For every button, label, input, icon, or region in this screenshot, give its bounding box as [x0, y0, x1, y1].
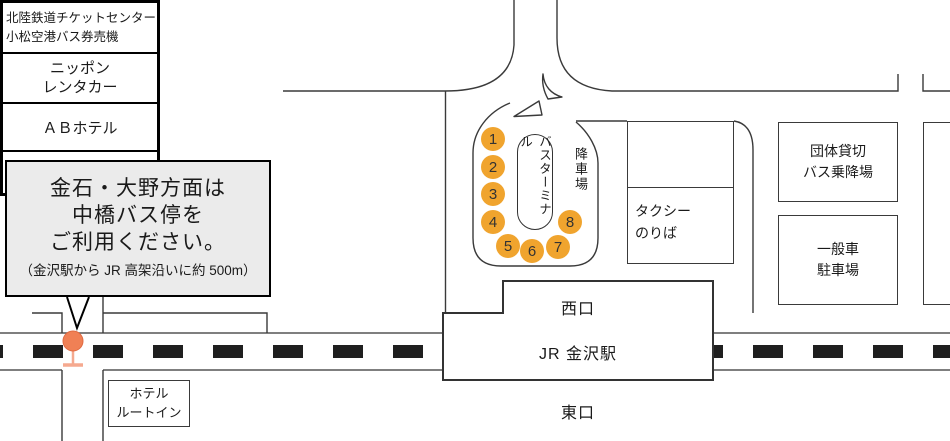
- hotel-line2: ルートイン: [116, 404, 181, 422]
- bus-terminal-label: バスターミナル: [516, 135, 554, 229]
- drop-off-label: 降車場: [571, 147, 590, 192]
- bus-stop-7: 7: [546, 235, 570, 259]
- callout-line: 中橋バス停を: [72, 205, 204, 227]
- bus-stop-8: 8: [558, 210, 582, 234]
- east-exit-label: 東口: [443, 399, 713, 423]
- taxi-line2: のりば: [635, 223, 733, 245]
- clipped-edge-box: [923, 122, 950, 305]
- chubashi-notice-callout: 金石・大野方面は 中橋バス停を ご利用ください。 （金沢駅から JR 高架沿いに…: [5, 160, 271, 297]
- bus-stop-2: 2: [481, 155, 505, 179]
- ab-hotel-cell: ＡＢホテル: [3, 102, 157, 150]
- callout-note: （金沢駅から JR 高架沿いに約 500m）: [19, 259, 256, 279]
- callout-tail: [67, 297, 89, 328]
- bus-stop-5: 5: [496, 234, 520, 258]
- parking-line1: 一般車: [817, 239, 859, 260]
- bus-stop-1: 1: [481, 127, 505, 151]
- hotel-route-inn-box: ホテル ルートイン: [108, 380, 190, 427]
- parking-line2: 駐車場: [817, 260, 859, 281]
- station-name-label: JR 金沢駅: [443, 340, 713, 364]
- bus-stop-pin: [63, 331, 83, 365]
- ticket-center-cell: 北陸鉄道チケットセンター 小松空港バス券売機: [3, 3, 157, 52]
- group-bus-area-box: 団体貸切 バス乗降場: [778, 122, 898, 202]
- bus-stop-4: 4: [481, 210, 505, 234]
- rentacar-line1: ニッポン: [50, 59, 110, 79]
- ticket-center-line2: 小松空港バス券売機: [6, 28, 119, 46]
- taxi-stand-label: タクシー のりば: [628, 188, 733, 244]
- rentacar-line2: レンタカー: [42, 78, 117, 98]
- ticket-center-line1: 北陸鉄道チケットセンター: [6, 9, 156, 27]
- group-bus-line2: バス乗降場: [803, 162, 873, 183]
- bus-stop-3: 3: [481, 182, 505, 206]
- group-bus-line1: 団体貸切: [810, 141, 866, 162]
- callout-line: 金石・大野方面は: [50, 178, 226, 200]
- taxi-stand-box: タクシー のりば: [627, 121, 734, 264]
- traffic-islands: [514, 74, 562, 117]
- west-exit-label: 西口: [443, 295, 713, 319]
- station-map: 金石・大野方面は 中橋バス停を ご利用ください。 （金沢駅から JR 高架沿いに…: [0, 0, 950, 441]
- taxi-line1: タクシー: [635, 201, 733, 223]
- hotel-line1: ホテル: [129, 385, 168, 403]
- callout-line: ご利用ください。: [50, 232, 226, 254]
- bus-terminal-sign: バスターミナル: [517, 134, 553, 230]
- general-parking-box: 一般車 駐車場: [778, 215, 898, 305]
- taxi-stand-empty-cell: [628, 122, 733, 188]
- nippon-rentacar-cell: ニッポン レンタカー: [3, 52, 157, 102]
- bus-stop-6: 6: [520, 239, 544, 263]
